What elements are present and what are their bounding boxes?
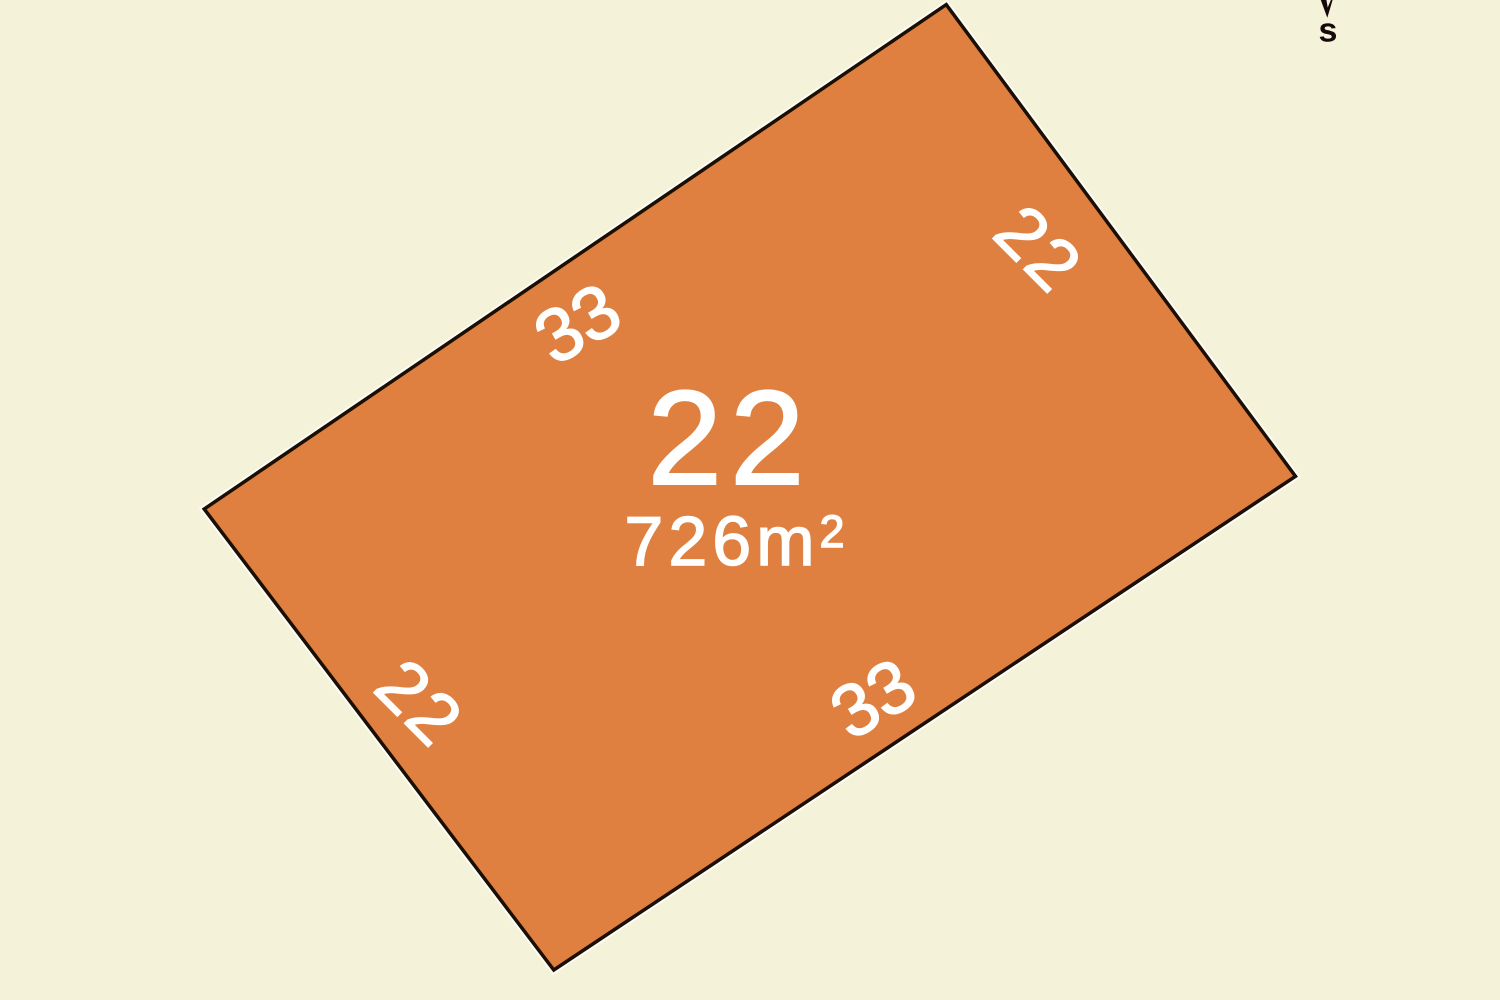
svg-text:s: s [1318,12,1337,50]
svg-text:22: 22 [647,364,812,513]
svg-text:726m2: 726m2 [624,502,849,580]
